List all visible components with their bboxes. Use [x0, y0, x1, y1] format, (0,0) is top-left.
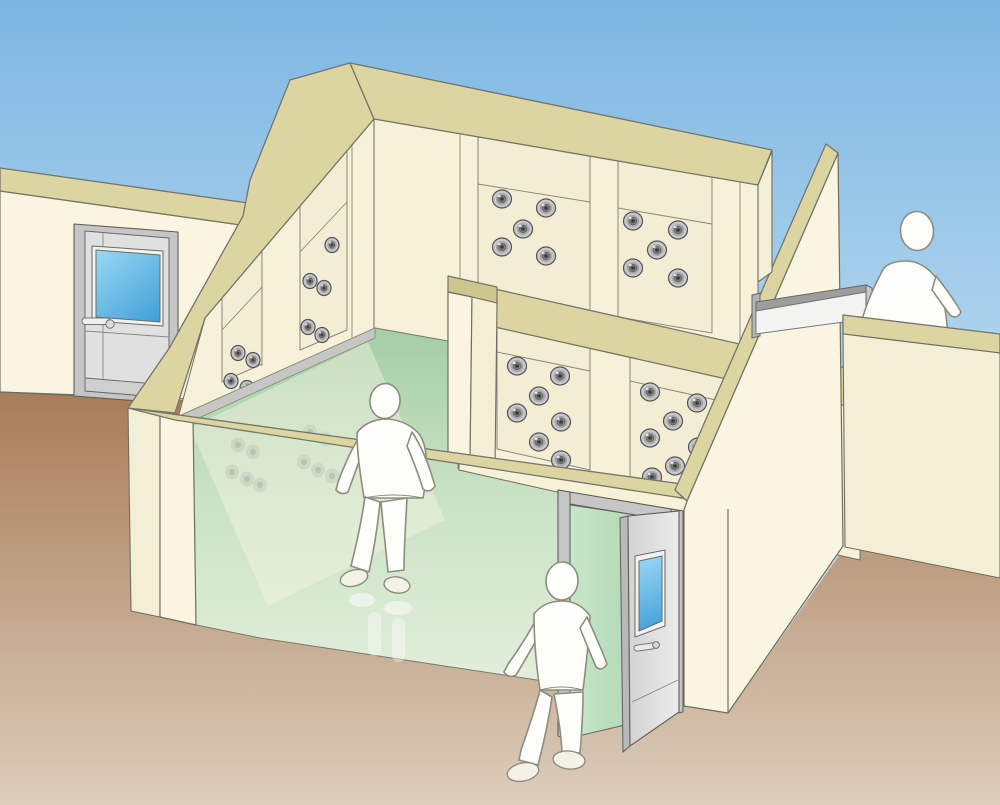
- air-nozzle: [530, 433, 549, 451]
- nozzle-panel: [497, 327, 590, 470]
- nozzle-panel: [478, 136, 590, 312]
- air-nozzle: [624, 259, 643, 277]
- air-nozzle: [537, 199, 556, 217]
- air-nozzle: [624, 212, 643, 230]
- air-nozzle: [493, 190, 512, 208]
- air-nozzle: [317, 281, 331, 296]
- partition-end-cap: [448, 276, 497, 468]
- air-nozzle: [231, 346, 245, 361]
- air-nozzle: [508, 404, 527, 422]
- air-nozzle: [493, 238, 512, 256]
- air-nozzle: [530, 387, 549, 405]
- air-nozzle: [648, 241, 667, 259]
- air-nozzle: [664, 412, 683, 430]
- air-nozzle: [666, 457, 685, 475]
- air-nozzle: [641, 383, 660, 401]
- air-nozzle: [224, 374, 238, 389]
- air-nozzle: [325, 238, 339, 253]
- cut-wall-end-face-2: [160, 413, 196, 625]
- air-nozzle: [301, 320, 315, 335]
- figure-entering-torso: [534, 601, 590, 690]
- nozzle-panel: [618, 160, 712, 333]
- air-nozzle: [551, 367, 570, 385]
- air-nozzle: [552, 413, 571, 431]
- exterior-wall-right-face: [843, 334, 1000, 578]
- door-window: [96, 250, 160, 322]
- entrance-door-leaf: [620, 511, 679, 752]
- air-nozzle: [303, 274, 317, 289]
- air-nozzle: [641, 429, 660, 447]
- air-shower-illustration: [0, 0, 1000, 805]
- exterior-wall-right: [843, 315, 1000, 578]
- air-nozzle: [508, 357, 527, 375]
- air-nozzle: [688, 394, 707, 412]
- cut-wall-end-face-1: [128, 408, 160, 617]
- leaf-window: [639, 556, 662, 631]
- air-nozzle: [669, 269, 688, 287]
- scene-canvas: [0, 0, 1000, 805]
- air-nozzle: [315, 328, 329, 343]
- air-nozzle: [537, 247, 556, 265]
- air-nozzle: [669, 221, 688, 239]
- air-nozzle: [514, 220, 533, 238]
- air-nozzle: [246, 353, 260, 368]
